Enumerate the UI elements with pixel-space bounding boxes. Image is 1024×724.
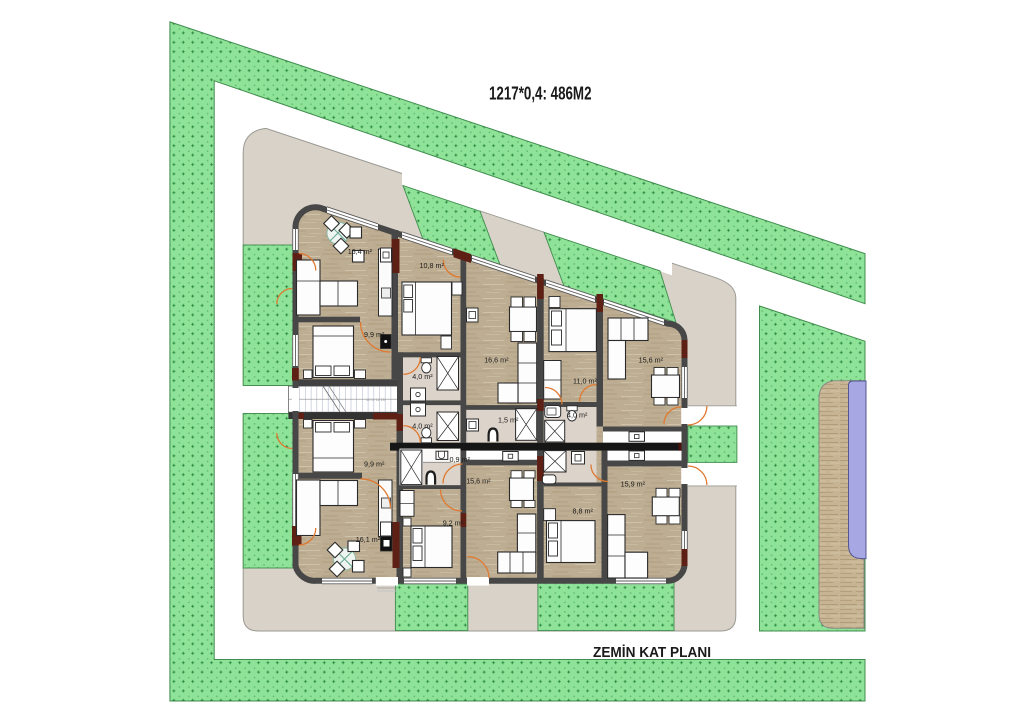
svg-text:1,5 m²: 1,5 m² [498, 416, 519, 425]
svg-text:4,0 m²: 4,0 m² [567, 411, 588, 420]
svg-text:16,6 m²: 16,6 m² [484, 356, 509, 365]
svg-text:8,8 m²: 8,8 m² [573, 507, 594, 516]
svg-text:9,2 m²: 9,2 m² [443, 519, 464, 528]
svg-text:4,0 m²: 4,0 m² [412, 372, 433, 381]
svg-text:4,0 m²: 4,0 m² [412, 422, 433, 431]
svg-text:15,9 m²: 15,9 m² [621, 480, 646, 489]
svg-text:10 11 12 13: 10 11 12 13 [366, 398, 385, 402]
svg-text:ZEMİN KAT PLANI: ZEMİN KAT PLANI [593, 644, 711, 661]
svg-text:15,6 m²: 15,6 m² [639, 356, 664, 365]
svg-text:15,6 m²: 15,6 m² [466, 477, 491, 486]
svg-text:16,4 m²: 16,4 m² [348, 247, 373, 256]
svg-text:9,9 m²: 9,9 m² [364, 460, 385, 469]
svg-text:0,9 m²: 0,9 m² [450, 455, 471, 464]
svg-text:9,9 m²: 9,9 m² [364, 330, 385, 339]
svg-text:11,0 m²: 11,0 m² [573, 377, 597, 386]
svg-text:16,1 m²: 16,1 m² [356, 535, 381, 544]
svg-text:10,8 m²: 10,8 m² [420, 261, 445, 270]
svg-text:1217*0,4: 486M2: 1217*0,4: 486M2 [489, 84, 592, 104]
